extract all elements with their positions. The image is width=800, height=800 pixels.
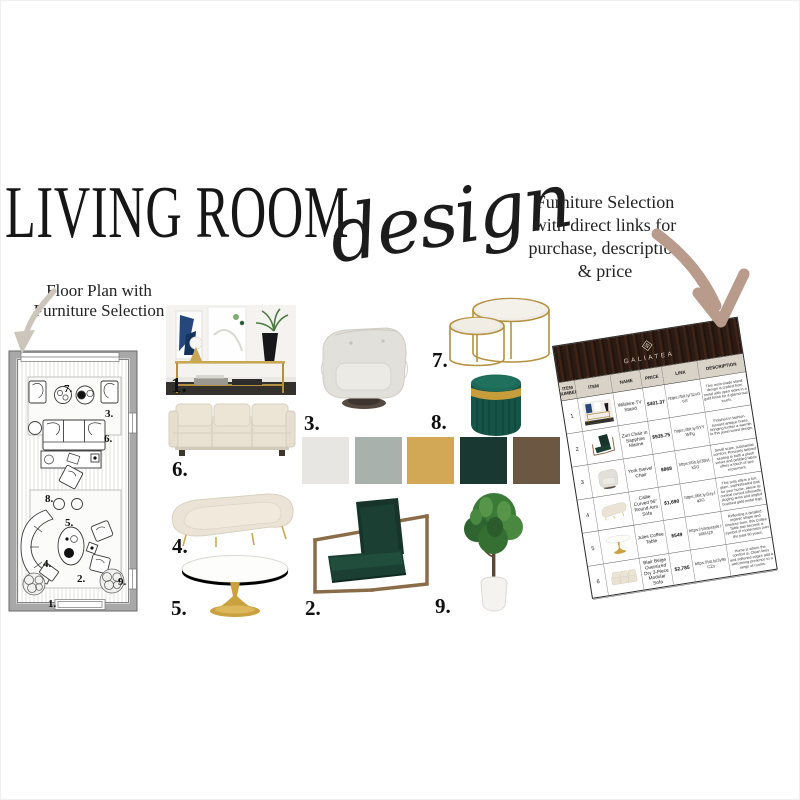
plan-label-8: 8. bbox=[45, 493, 54, 505]
palette-swatch-1 bbox=[302, 437, 349, 484]
photo-9-plant bbox=[462, 487, 526, 614]
plan-door-bottom bbox=[55, 600, 105, 610]
photo-2-accent-chair bbox=[298, 494, 442, 610]
plan-label-9: 9. bbox=[118, 576, 127, 588]
photo-3-swivel-chair bbox=[305, 313, 423, 413]
palette-swatch-2 bbox=[355, 437, 402, 484]
board-label-7: 7. bbox=[432, 348, 448, 373]
palette-swatch-4 bbox=[460, 437, 507, 484]
photo-5-tulip-table bbox=[169, 552, 301, 618]
table-caption: Furniture Selection with direct links fo… bbox=[512, 191, 698, 283]
floor-plan: 7. 3. 6. 8. 5. 4. 2. 9. 1. bbox=[8, 350, 138, 612]
plan-label-4: 4. bbox=[43, 558, 52, 570]
floor-plan-caption-line1: Floor Plan with bbox=[18, 281, 180, 301]
board-label-6: 6. bbox=[172, 457, 188, 482]
photo-7-nesting-tables bbox=[443, 293, 555, 368]
board-label-2: 2. bbox=[305, 596, 321, 621]
thumb-curved-sofa bbox=[593, 492, 634, 530]
plan-label-5: 5. bbox=[65, 517, 74, 529]
plan-label-6: 6. bbox=[104, 433, 113, 445]
photo-6-modular-sofa bbox=[167, 397, 297, 459]
plan-label-3: 3. bbox=[105, 408, 114, 420]
table-caption-line2: with direct links for bbox=[512, 214, 698, 237]
plan-window-right-2 bbox=[129, 569, 137, 589]
thumb-modular-sofa bbox=[604, 558, 645, 596]
price-table-sheet: GALIATEA ITEM NUMBER ITEM NAME PRICE LIN… bbox=[552, 317, 778, 599]
board-label-8: 8. bbox=[431, 410, 447, 435]
floor-plan-caption: Floor Plan with Furniture Selection bbox=[18, 281, 180, 322]
plan-window-right-1 bbox=[129, 413, 137, 433]
board-label-5: 5. bbox=[171, 596, 187, 621]
thumb-green-chair bbox=[583, 426, 624, 464]
board-label-4: 4. bbox=[172, 534, 188, 559]
table-caption-line1: Furniture Selection bbox=[512, 191, 698, 214]
plan-label-1: 1. bbox=[48, 598, 57, 610]
plan-window-top bbox=[21, 353, 119, 362]
floor-plan-caption-line2: Furniture Selection bbox=[18, 301, 180, 321]
board-label-9: 9. bbox=[435, 594, 451, 619]
moodboard-canvas: LIVING ROOM design Floor Plan with Furni… bbox=[0, 0, 800, 800]
thumb-swivel-chair bbox=[588, 459, 629, 497]
thumb-coffee-table bbox=[599, 525, 640, 563]
table-caption-line3: purchase, description bbox=[512, 237, 698, 260]
palette-swatch-3 bbox=[407, 437, 454, 484]
palette-swatch-5 bbox=[513, 437, 560, 484]
thumb-tv-stand bbox=[578, 393, 619, 431]
galiatea-logo-icon bbox=[640, 338, 655, 353]
photo-8-ottoman bbox=[467, 372, 525, 438]
table-caption-line4: & price bbox=[512, 260, 698, 283]
page-title: LIVING ROOM bbox=[5, 176, 349, 250]
board-label-1: 1. bbox=[171, 373, 187, 398]
plan-label-7: 7. bbox=[64, 383, 73, 395]
plan-label-2: 2. bbox=[77, 573, 86, 585]
board-label-3: 3. bbox=[304, 411, 320, 436]
